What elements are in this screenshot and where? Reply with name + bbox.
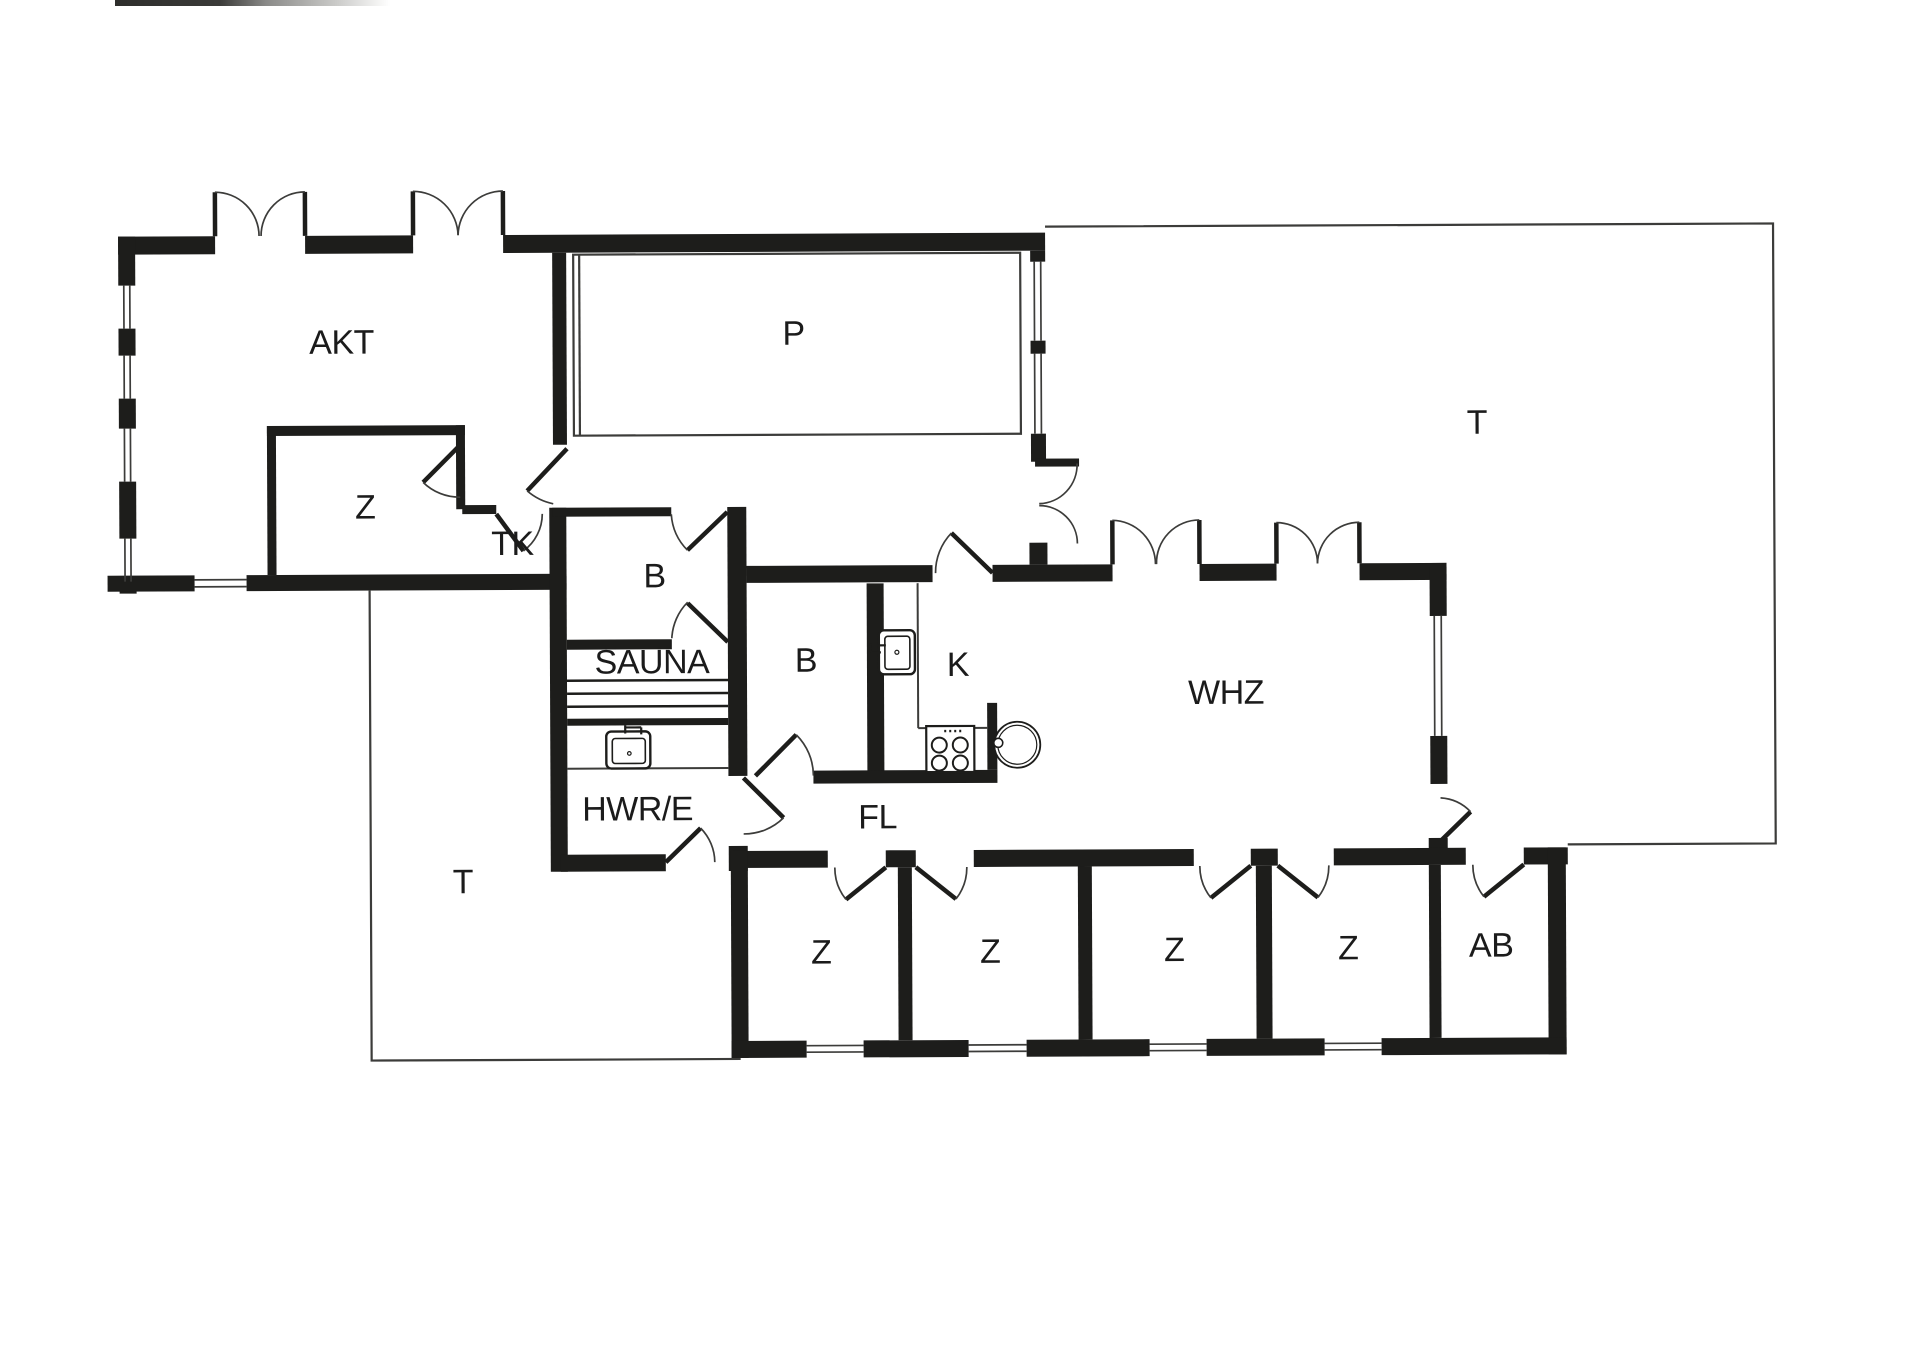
room-label-bath-middle: B: [795, 644, 817, 678]
floorplan: AKTPTZTKBSAUNABKWHZHWR/EFLTZZZZAB: [0, 0, 1920, 1357]
room-label-whz: WHZ: [1188, 676, 1264, 710]
room-label-z4: Z: [1338, 931, 1358, 965]
floorplan-page: AKTPTZTKBSAUNABKWHZHWR/EFLTZZZZAB: [0, 0, 1920, 1357]
room-label-akt: AKT: [309, 326, 374, 360]
room-label-bath-north: B: [643, 559, 665, 593]
room-label-z2: Z: [980, 935, 1000, 969]
room-label-terrace-west: T: [453, 865, 473, 899]
room-label-z-akt: Z: [355, 491, 375, 525]
room-label-hwr-e: HWR/E: [582, 792, 693, 826]
room-label-z1: Z: [811, 936, 831, 970]
room-label-ab: AB: [1469, 929, 1514, 963]
room-label-sauna: SAUNA: [595, 645, 710, 679]
room-label-fl: FL: [858, 800, 897, 834]
room-labels: AKTPTZTKBSAUNABKWHZHWR/EFLTZZZZAB: [0, 0, 1920, 1357]
room-label-terrace-east: T: [1467, 406, 1487, 440]
room-label-tk: TK: [491, 527, 534, 561]
room-label-pool: P: [782, 317, 804, 351]
room-label-z3: Z: [1164, 933, 1184, 967]
room-label-kitchen: K: [947, 648, 969, 682]
